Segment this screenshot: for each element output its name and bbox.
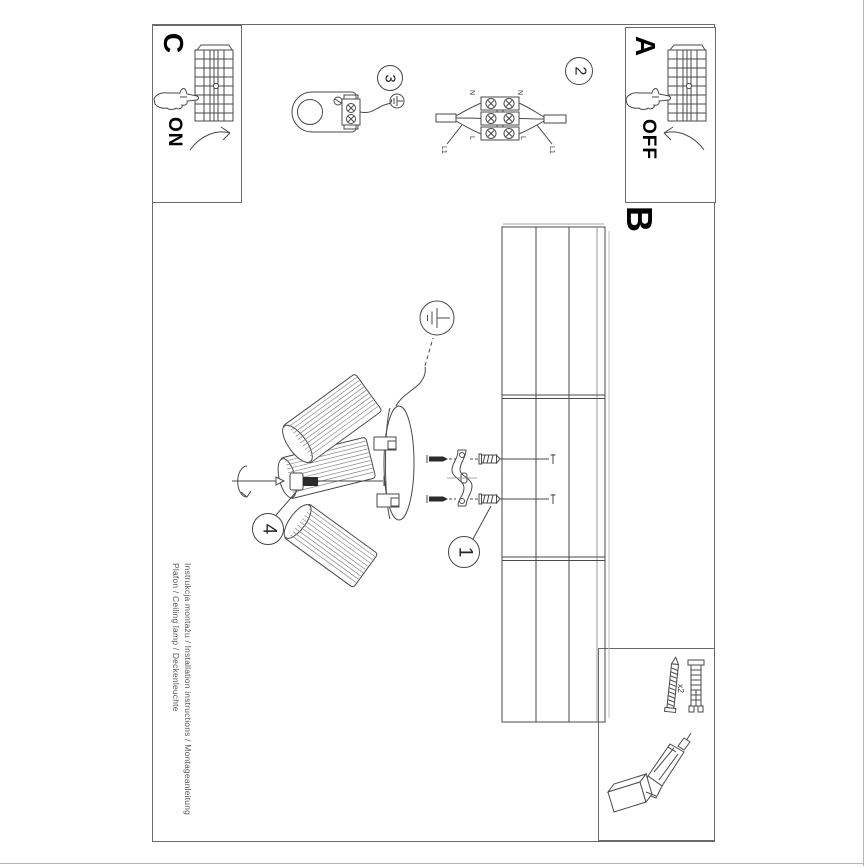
lamp-shade bbox=[279, 500, 378, 588]
power-cord bbox=[360, 103, 391, 113]
lamp-holder-icon bbox=[292, 92, 360, 132]
breaker-panel-icon bbox=[195, 45, 233, 121]
instruction-sheet: C ON A OFF B 3 2 4 1 1 N N L L L1 L1 x2 … bbox=[0, 0, 868, 868]
rotate-arrow-icon bbox=[232, 466, 284, 497]
wall-plug-item bbox=[688, 660, 704, 712]
line-art bbox=[0, 0, 868, 868]
drill-icon bbox=[608, 733, 691, 812]
ground-symbol-icon bbox=[390, 94, 404, 108]
wall-plug bbox=[479, 454, 549, 504]
rotate-arrow-icon bbox=[664, 127, 704, 150]
rotate-arrow-icon bbox=[190, 127, 230, 150]
mounting-screw bbox=[427, 455, 478, 503]
ground-symbol-icon bbox=[420, 301, 454, 335]
terminal-block-diagram bbox=[436, 97, 566, 144]
pointing-hand-icon bbox=[626, 89, 671, 110]
ceiling-panel bbox=[502, 224, 609, 722]
leader-line bbox=[473, 506, 491, 539]
breaker-panel-icon bbox=[668, 45, 706, 121]
mounting-bracket bbox=[447, 450, 477, 506]
panel-screw-mark bbox=[551, 454, 556, 504]
screw-item bbox=[665, 657, 682, 713]
pointing-hand-icon bbox=[154, 89, 199, 110]
power-cord bbox=[396, 338, 433, 406]
